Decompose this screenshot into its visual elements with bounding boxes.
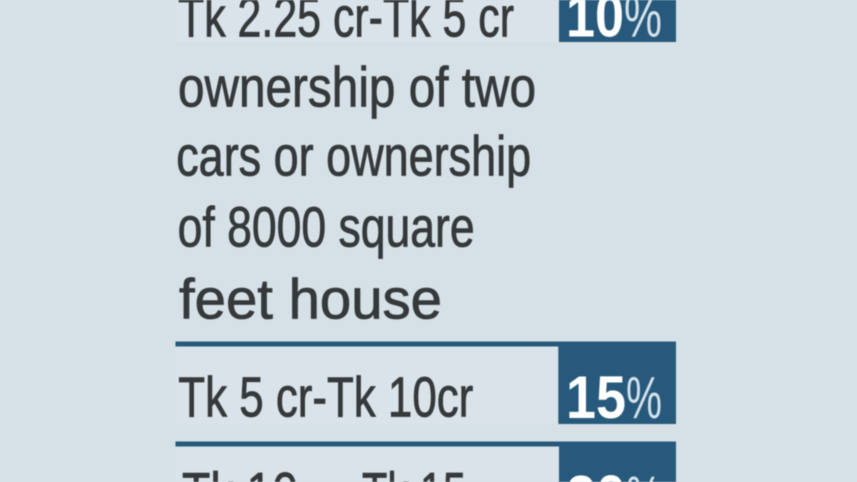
svg-text:cars or ownership: cars or ownership (176, 124, 531, 187)
svg-text:Tk 5 cr-Tk 10cr: Tk 5 cr-Tk 10cr (178, 366, 473, 429)
svg-text:of 8000 square: of 8000 square (178, 196, 475, 259)
svg-text:Tk 10: Tk 10 (182, 461, 298, 482)
svg-text:ownership of two: ownership of two (178, 56, 536, 119)
svg-text:%: % (626, 365, 662, 431)
svg-text:20: 20 (566, 464, 626, 482)
svg-text:%: % (626, 465, 662, 482)
svg-text:%: % (624, 0, 662, 50)
svg-text:15: 15 (566, 364, 626, 431)
svg-text:feet house: feet house (179, 268, 442, 331)
svg-text:Tk 2.25 cr-Tk 5 cr: Tk 2.25 cr-Tk 5 cr (178, 0, 514, 49)
svg-text:10: 10 (566, 0, 624, 50)
svg-text:Tk 15: Tk 15 (362, 461, 466, 482)
